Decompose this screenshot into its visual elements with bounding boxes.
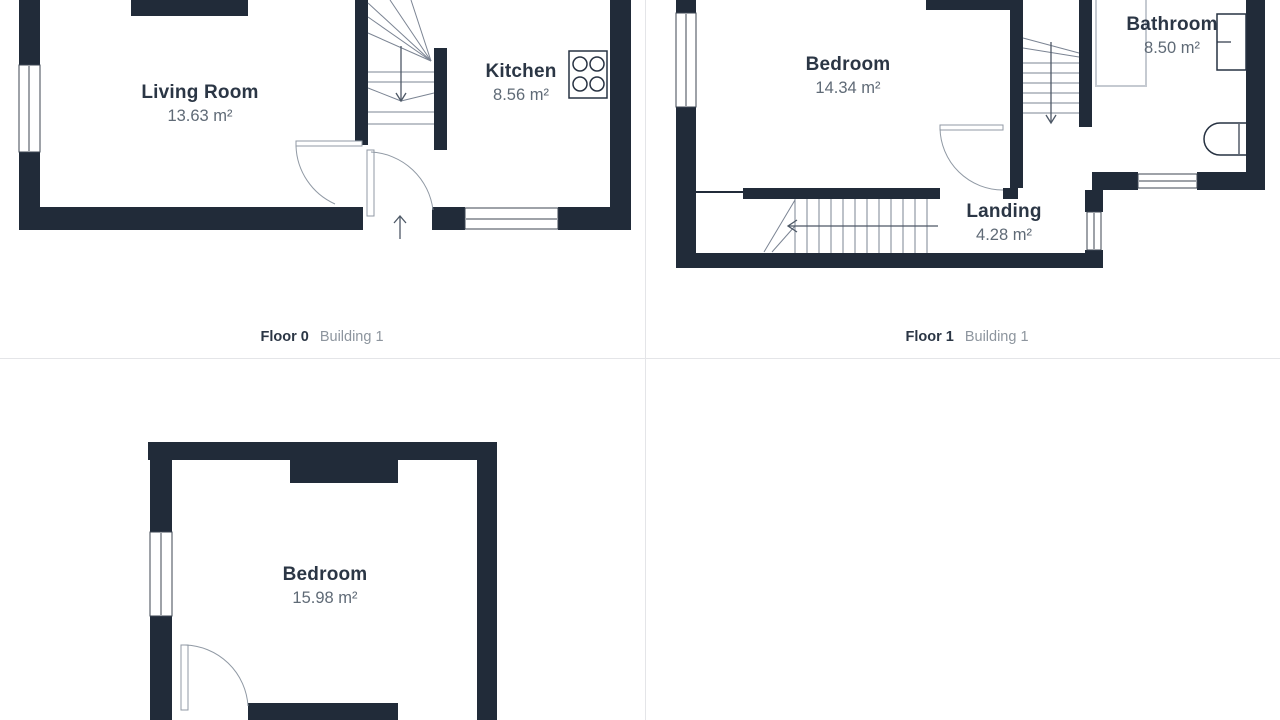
chimney-breast [290, 460, 398, 483]
bedroom-f1-label: Bedroom 14.34 m² [806, 54, 891, 98]
room-name: Bedroom [283, 564, 368, 586]
room-name: Landing [966, 201, 1041, 223]
kitchen-label: Kitchen 8.56 m² [485, 61, 556, 105]
bathroom-window [1138, 174, 1197, 188]
stair-direction-arrow [396, 46, 406, 101]
floor1-caption: Floor 1 Building 1 [905, 329, 1028, 345]
room-area: 13.63 m² [141, 107, 258, 126]
caption-building: Building 1 [320, 329, 384, 345]
stove-icon [569, 51, 607, 98]
caption-floor: Floor 1 [905, 329, 953, 345]
room-name: Kitchen [485, 61, 556, 83]
bedroom2-door [181, 645, 248, 710]
entry-arrow-icon [394, 216, 406, 239]
floor0-caption: Floor 0 Building 1 [260, 329, 383, 345]
room-name: Bathroom [1126, 14, 1217, 36]
bedroom2-window [150, 532, 172, 616]
floor0-staircase [368, 0, 434, 124]
room-name: Living Room [141, 82, 258, 104]
entry-door [367, 150, 433, 216]
bathroom-label: Bathroom 8.50 m² [1126, 14, 1217, 58]
living-room-door [296, 141, 362, 204]
bedroom-door [940, 125, 1003, 190]
room-area: 4.28 m² [966, 226, 1041, 245]
floor1-upper-staircase [1023, 38, 1079, 123]
bedroom-window [676, 13, 696, 107]
floorplan-page: Living Room 13.63 m² Kitchen 8.56 m² Bed… [0, 0, 1280, 720]
sink-icon [1217, 14, 1246, 70]
living-room-label: Living Room 13.63 m² [141, 82, 258, 126]
floor1-lower-staircase [764, 199, 938, 253]
room-name: Bedroom [806, 54, 891, 76]
floor0-walls [19, 0, 631, 230]
living-room-window [19, 65, 40, 152]
room-area: 14.34 m² [806, 79, 891, 98]
floor0-plan [19, 0, 631, 239]
landing-window [1087, 212, 1101, 250]
landing-label: Landing 4.28 m² [966, 201, 1041, 245]
bedroom-f2-label: Bedroom 15.98 m² [283, 564, 368, 608]
caption-building: Building 1 [965, 329, 1029, 345]
kitchen-window [465, 208, 558, 229]
chimney-breast [131, 0, 248, 16]
room-area: 8.50 m² [1126, 39, 1217, 58]
caption-floor: Floor 0 [260, 329, 308, 345]
room-area: 8.56 m² [485, 86, 556, 105]
bathtub-icon [1204, 123, 1246, 155]
room-area: 15.98 m² [283, 589, 368, 608]
